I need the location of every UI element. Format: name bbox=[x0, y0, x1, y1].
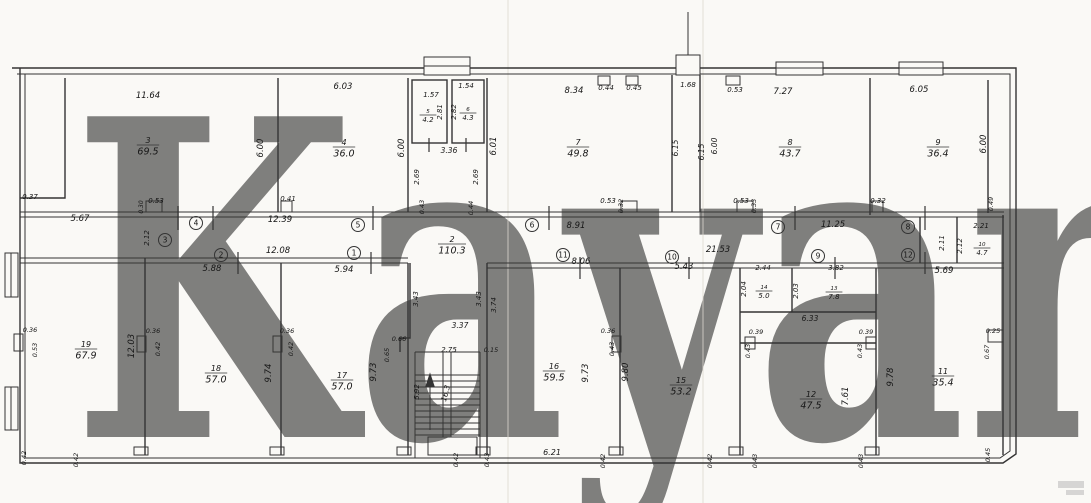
room-area: 49.8 bbox=[567, 149, 588, 160]
dimension-label: 0.36 bbox=[23, 326, 37, 334]
room-area: 53.2 bbox=[670, 387, 691, 398]
dimension-label: 6.00 bbox=[979, 135, 989, 154]
dimension-label: 5.67 bbox=[71, 214, 91, 224]
door-marker-number: 12 bbox=[903, 251, 913, 260]
dimension-label: 0.65 bbox=[383, 348, 391, 362]
dimension-label: 2.69 bbox=[472, 169, 480, 185]
room-number: 2 bbox=[449, 235, 454, 244]
room-number: 3 bbox=[145, 136, 150, 145]
room-number: 11 bbox=[938, 367, 948, 376]
dimension-label: 3.36 bbox=[441, 146, 458, 155]
dimension-label: 0.44 bbox=[598, 84, 614, 92]
door-marker-number: 11 bbox=[558, 251, 568, 260]
dimension-label: 7.61 bbox=[841, 387, 851, 406]
dimension-label: 9.73 bbox=[369, 363, 379, 382]
dimension-label: 2.69 bbox=[413, 169, 421, 185]
dimension-label: 8.91 bbox=[567, 221, 586, 231]
dimension-label: 2.75 bbox=[441, 346, 457, 354]
room-number: 10 bbox=[979, 242, 986, 248]
door-marker-number: 1 bbox=[352, 249, 357, 258]
room-number: 19 bbox=[81, 340, 91, 349]
dimension-label: 5.92 bbox=[413, 384, 421, 400]
room-area: 47.5 bbox=[800, 401, 821, 412]
dimension-label: 0.42 bbox=[706, 454, 714, 468]
dimension-label: 0.15 bbox=[484, 346, 498, 354]
dimension-label: 0.49 bbox=[987, 197, 995, 211]
room-number: 16 bbox=[549, 362, 559, 371]
dimension-label: 3.82 bbox=[828, 264, 844, 272]
dimension-label: 1.54 bbox=[458, 82, 474, 90]
dimension-label: 6.00 bbox=[710, 137, 719, 154]
dimension-label: 0.42 bbox=[20, 451, 28, 465]
dimension-label: 0.45 bbox=[984, 448, 992, 462]
dimension-label: 8.34 bbox=[565, 86, 584, 96]
dimension-label: 6.21 bbox=[543, 448, 561, 457]
dimension-label: 6.00 bbox=[397, 139, 407, 158]
dimension-label: 2.82 bbox=[450, 104, 458, 120]
dimension-label: 2.21 bbox=[973, 222, 989, 230]
dimension-label: 3.74 bbox=[490, 297, 498, 313]
room-area: 67.9 bbox=[75, 351, 96, 362]
dimension-label: 3.43 bbox=[412, 291, 420, 307]
dimension-label: 0.42 bbox=[72, 453, 80, 467]
room-area: 5.0 bbox=[758, 292, 770, 300]
dimension-label: 0.53 bbox=[31, 343, 39, 357]
room-area: 110.3 bbox=[438, 246, 465, 257]
dimension-label: 0.36 bbox=[146, 327, 160, 335]
dimension-label: 6.05 bbox=[910, 85, 929, 95]
dimension-label: 2.04 bbox=[740, 281, 748, 297]
room-area: 4.3 bbox=[462, 114, 473, 122]
dimension-label: 5.94 bbox=[335, 265, 354, 275]
room-area: 57.0 bbox=[205, 375, 226, 386]
dimension-label: 6.33 bbox=[802, 314, 819, 323]
dimension-label: 9.80 bbox=[621, 363, 631, 382]
dimension-label: 9.78 bbox=[886, 367, 896, 387]
dimension-label: 2.12 bbox=[956, 238, 964, 254]
dimension-label: 0.43 bbox=[483, 453, 491, 467]
dimension-label: 1.57 bbox=[423, 91, 439, 99]
dimension-label: 0.37 bbox=[22, 193, 38, 201]
room-area: 69.5 bbox=[137, 147, 158, 158]
dimension-label: 0.67 bbox=[983, 344, 991, 359]
dimension-label: 0.42 bbox=[599, 454, 607, 468]
room-number: 14 bbox=[761, 285, 768, 291]
dimension-label: 0.39 bbox=[859, 328, 873, 336]
dimension-label: 0.43 bbox=[856, 344, 864, 358]
dimension-label: 0.32 bbox=[870, 197, 886, 205]
floor-plan-svg: Kayan bbox=[0, 0, 1091, 503]
room-area: 4.7 bbox=[976, 249, 988, 257]
dimension-label: 0.25 bbox=[986, 327, 1000, 335]
dimension-label: 1.68 bbox=[680, 81, 696, 89]
door-marker-number: 3 bbox=[163, 236, 168, 245]
dimension-label: 12.39 bbox=[268, 215, 292, 225]
dimension-label: 0.32 bbox=[617, 199, 625, 213]
dimension-label: 3.37 bbox=[452, 321, 469, 330]
dimension-label: 2.44 bbox=[755, 264, 771, 272]
room-number: 15 bbox=[676, 376, 686, 385]
dimension-label: 0.43 bbox=[857, 454, 865, 468]
vent-shaft bbox=[676, 55, 700, 75]
room-area: 57.0 bbox=[331, 382, 352, 393]
room-area: 36.4 bbox=[927, 149, 948, 160]
room-number: 17 bbox=[337, 371, 348, 380]
dimension-label: 0.41 bbox=[280, 195, 296, 203]
dimension-label: 0.43 bbox=[418, 200, 426, 214]
dimension-label: 6.00 bbox=[256, 139, 266, 158]
dimension-label: 6.15 bbox=[671, 139, 680, 156]
dimension-label: 12.03 bbox=[127, 334, 137, 358]
room-area: 36.0 bbox=[333, 149, 354, 160]
dimension-label: 0.44 bbox=[467, 201, 475, 215]
room-number: 8 bbox=[787, 138, 792, 147]
dimension-label: 2.81 bbox=[436, 104, 444, 120]
dimension-label: 6.15 bbox=[697, 143, 706, 160]
dimension-label: 12.08 bbox=[266, 246, 291, 256]
dimension-label: 0.36 bbox=[280, 327, 294, 335]
dimension-label: 0.30 bbox=[138, 200, 145, 214]
door-marker-number: 9 bbox=[816, 252, 821, 261]
dimension-label: 0.39 bbox=[749, 328, 763, 336]
dimension-label: 6.03 bbox=[334, 82, 353, 92]
dimension-label: 0.33 bbox=[750, 199, 758, 213]
dimension-label: 9.73 bbox=[581, 364, 591, 383]
dimension-label: 0.36 bbox=[601, 327, 615, 335]
dimension-label: 6.01 bbox=[489, 137, 499, 156]
door-marker-number: 10 bbox=[667, 253, 677, 262]
room-number: 5 bbox=[426, 109, 430, 115]
room-number: 12 bbox=[806, 390, 816, 399]
room-area: 35.4 bbox=[932, 378, 953, 389]
dimension-label: 11.25 bbox=[821, 220, 845, 230]
door-marker-number: 4 bbox=[194, 219, 199, 228]
dimension-label: 9.74 bbox=[264, 364, 274, 383]
room-number: 13 bbox=[831, 286, 838, 292]
dimension-label: 5.43 bbox=[675, 262, 694, 272]
dimension-label: 8.06 bbox=[572, 257, 592, 267]
room-area: 59.5 bbox=[543, 373, 564, 384]
room-number: 9 bbox=[935, 138, 940, 147]
dimension-label: 2.12 bbox=[143, 230, 151, 246]
door-marker-number: 6 bbox=[530, 221, 535, 230]
dimension-label: 21.53 bbox=[706, 245, 730, 255]
dimension-label: 7.27 bbox=[774, 87, 794, 97]
dimension-label: 5.69 bbox=[935, 266, 954, 276]
door-marker-number: 5 bbox=[356, 221, 361, 230]
dimension-label: 0.43 bbox=[751, 454, 759, 468]
dimension-label: 0.42 bbox=[154, 342, 162, 356]
room-area: 4.2 bbox=[422, 116, 434, 124]
dimension-label: 0.53 bbox=[733, 197, 749, 205]
dimension-label: 5.88 bbox=[203, 264, 223, 274]
dimension-label: 0.43 bbox=[608, 342, 616, 356]
room-area: 7.8 bbox=[828, 293, 840, 301]
dimension-label: 3.43 bbox=[475, 291, 483, 307]
room-number: 6 bbox=[466, 107, 470, 113]
scanned-floor-plan: Kayan bbox=[0, 0, 1091, 503]
dimension-label: 0.53 bbox=[600, 197, 616, 205]
dimension-label: 11.64 bbox=[136, 91, 160, 101]
dimension-label: 0.42 bbox=[287, 342, 295, 356]
dimension-label: 0.43 bbox=[744, 344, 752, 358]
door-marker-number: 8 bbox=[906, 223, 911, 232]
dimension-label: 0.53 bbox=[148, 197, 164, 205]
room-number: 4 bbox=[341, 138, 346, 147]
door-marker-number: 7 bbox=[776, 223, 781, 232]
dimension-label: 0.53 bbox=[727, 86, 743, 94]
dimension-label: 0.42 bbox=[452, 453, 460, 467]
door-marker-number: 2 bbox=[219, 251, 224, 260]
dimension-label: 2.03 bbox=[792, 283, 800, 299]
dimension-label: 2.11 bbox=[938, 235, 946, 251]
dimension-label: 0.45 bbox=[626, 84, 642, 92]
dimension-label: 0.66 bbox=[392, 335, 406, 343]
room-area: 43.7 bbox=[779, 149, 800, 160]
room-number: 18 bbox=[211, 364, 221, 373]
